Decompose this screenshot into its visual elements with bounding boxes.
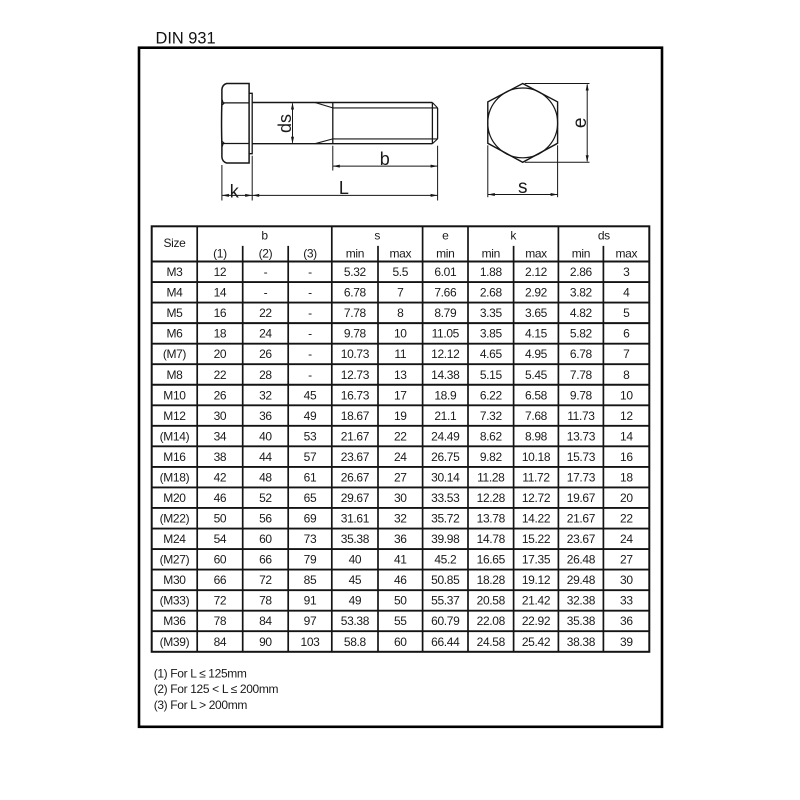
svg-text:44: 44 xyxy=(259,450,272,464)
svg-text:78: 78 xyxy=(259,594,272,608)
svg-text:36: 36 xyxy=(394,532,407,546)
svg-text:19.67: 19.67 xyxy=(567,491,596,505)
svg-text:M8: M8 xyxy=(166,368,183,382)
svg-text:-: - xyxy=(308,368,312,382)
svg-text:3.82: 3.82 xyxy=(570,286,593,300)
svg-text:91: 91 xyxy=(304,594,317,608)
svg-text:29.67: 29.67 xyxy=(341,491,370,505)
svg-text:23.67: 23.67 xyxy=(341,450,370,464)
svg-text:60: 60 xyxy=(214,553,227,567)
svg-text:22: 22 xyxy=(259,306,272,320)
svg-text:4.65: 4.65 xyxy=(480,347,503,361)
svg-text:33: 33 xyxy=(620,594,633,608)
svg-text:35.38: 35.38 xyxy=(567,614,596,628)
svg-text:29.48: 29.48 xyxy=(567,573,596,587)
svg-text:18.9: 18.9 xyxy=(434,388,457,402)
svg-text:16.65: 16.65 xyxy=(477,553,506,567)
svg-text:50.85: 50.85 xyxy=(431,573,460,587)
svg-text:26.67: 26.67 xyxy=(341,471,370,485)
svg-text:49: 49 xyxy=(349,594,362,608)
svg-text:15.73: 15.73 xyxy=(567,450,596,464)
svg-text:12: 12 xyxy=(214,265,227,279)
svg-text:min: min xyxy=(436,246,454,260)
svg-text:6.01: 6.01 xyxy=(434,265,457,279)
svg-text:M30: M30 xyxy=(163,573,186,587)
svg-text:33.53: 33.53 xyxy=(431,491,460,505)
svg-text:(1): (1) xyxy=(213,246,227,260)
svg-text:(2): (2) xyxy=(259,246,273,260)
svg-text:39: 39 xyxy=(620,635,633,649)
svg-text:52: 52 xyxy=(259,491,272,505)
svg-text:10: 10 xyxy=(394,327,407,341)
svg-text:21.42: 21.42 xyxy=(522,594,551,608)
svg-text:56: 56 xyxy=(259,512,272,526)
svg-text:17.35: 17.35 xyxy=(522,553,551,567)
svg-text:6: 6 xyxy=(623,327,630,341)
svg-text:14: 14 xyxy=(214,286,227,300)
svg-text:49: 49 xyxy=(304,409,317,423)
svg-text:8: 8 xyxy=(623,368,630,382)
svg-text:11: 11 xyxy=(394,347,406,361)
svg-text:-: - xyxy=(308,265,312,279)
svg-text:(M22): (M22) xyxy=(160,512,190,526)
svg-text:-: - xyxy=(308,347,312,361)
svg-text:(M18): (M18) xyxy=(160,471,190,485)
svg-text:8.98: 8.98 xyxy=(525,429,548,443)
svg-text:5.5: 5.5 xyxy=(392,265,408,279)
svg-text:79: 79 xyxy=(304,553,317,567)
svg-text:57: 57 xyxy=(304,450,317,464)
svg-text:84: 84 xyxy=(259,614,272,628)
svg-text:65: 65 xyxy=(304,491,317,505)
svg-text:39.98: 39.98 xyxy=(431,532,460,546)
svg-text:M12: M12 xyxy=(163,409,186,423)
svg-text:61: 61 xyxy=(304,471,317,485)
svg-text:3.85: 3.85 xyxy=(480,327,503,341)
svg-text:s: s xyxy=(518,177,528,198)
svg-text:84: 84 xyxy=(214,635,227,649)
svg-text:50: 50 xyxy=(214,512,227,526)
svg-text:12.28: 12.28 xyxy=(477,491,506,505)
svg-text:35.72: 35.72 xyxy=(431,512,460,526)
svg-text:54: 54 xyxy=(214,532,227,546)
svg-text:18.67: 18.67 xyxy=(341,409,370,423)
svg-text:M4: M4 xyxy=(166,286,183,300)
svg-text:4.82: 4.82 xyxy=(570,306,593,320)
svg-text:M24: M24 xyxy=(163,532,186,546)
svg-text:58.8: 58.8 xyxy=(344,635,367,649)
svg-text:21.67: 21.67 xyxy=(341,429,370,443)
svg-text:16: 16 xyxy=(214,306,227,320)
svg-text:s: s xyxy=(374,229,380,243)
svg-text:e: e xyxy=(442,229,449,243)
svg-text:5.15: 5.15 xyxy=(480,368,503,382)
svg-text:9.78: 9.78 xyxy=(344,327,367,341)
svg-text:ds: ds xyxy=(598,229,610,243)
svg-text:60.79: 60.79 xyxy=(431,614,460,628)
svg-text:24: 24 xyxy=(259,327,272,341)
svg-text:(M7): (M7) xyxy=(163,347,187,361)
svg-text:5.82: 5.82 xyxy=(570,327,593,341)
svg-text:16: 16 xyxy=(620,450,633,464)
svg-text:66.44: 66.44 xyxy=(431,635,460,649)
svg-text:L: L xyxy=(339,178,349,198)
svg-text:7.68: 7.68 xyxy=(525,409,548,423)
svg-text:10.73: 10.73 xyxy=(341,347,370,361)
svg-text:14.78: 14.78 xyxy=(477,532,506,546)
svg-text:28: 28 xyxy=(259,368,272,382)
svg-text:12.12: 12.12 xyxy=(431,347,460,361)
svg-text:min: min xyxy=(346,246,364,260)
svg-text:19: 19 xyxy=(394,409,407,423)
svg-text:24.58: 24.58 xyxy=(477,635,506,649)
svg-text:24.49: 24.49 xyxy=(431,429,460,443)
svg-text:13: 13 xyxy=(394,368,407,382)
svg-text:7.78: 7.78 xyxy=(344,306,367,320)
svg-text:(3): (3) xyxy=(303,246,317,260)
svg-text:32.38: 32.38 xyxy=(567,594,596,608)
svg-text:-: - xyxy=(308,327,312,341)
svg-text:9.82: 9.82 xyxy=(480,450,503,464)
svg-text:20: 20 xyxy=(620,491,633,505)
svg-text:(2) For 125 < L ≤ 200mm: (2) For 125 < L ≤ 200mm xyxy=(154,682,279,696)
svg-text:13.73: 13.73 xyxy=(567,429,596,443)
svg-text:66: 66 xyxy=(214,573,227,587)
svg-text:(M14): (M14) xyxy=(160,429,190,443)
svg-text:22.92: 22.92 xyxy=(522,614,551,628)
svg-text:45: 45 xyxy=(349,573,362,587)
svg-text:DIN 931: DIN 931 xyxy=(156,30,216,48)
svg-text:2.12: 2.12 xyxy=(525,265,548,279)
svg-text:34: 34 xyxy=(214,429,227,443)
svg-text:48: 48 xyxy=(259,471,272,485)
svg-text:18.28: 18.28 xyxy=(477,573,506,587)
svg-text:30: 30 xyxy=(394,491,407,505)
svg-text:7.66: 7.66 xyxy=(434,286,457,300)
svg-text:19.12: 19.12 xyxy=(522,573,551,587)
svg-text:8: 8 xyxy=(397,306,404,320)
svg-text:7.32: 7.32 xyxy=(480,409,503,423)
svg-text:13.78: 13.78 xyxy=(477,512,506,526)
svg-text:4.95: 4.95 xyxy=(525,347,548,361)
svg-text:53.38: 53.38 xyxy=(341,614,370,628)
svg-text:-: - xyxy=(308,306,312,320)
svg-text:9.78: 9.78 xyxy=(570,388,593,402)
svg-text:12.73: 12.73 xyxy=(341,368,370,382)
svg-text:85: 85 xyxy=(304,573,317,587)
svg-text:-: - xyxy=(308,286,312,300)
svg-text:6.22: 6.22 xyxy=(480,388,503,402)
svg-text:5.45: 5.45 xyxy=(525,368,548,382)
svg-text:22: 22 xyxy=(620,512,633,526)
svg-text:M16: M16 xyxy=(163,450,186,464)
svg-text:23.67: 23.67 xyxy=(567,532,596,546)
svg-text:11.28: 11.28 xyxy=(477,471,505,485)
svg-text:7.78: 7.78 xyxy=(570,368,593,382)
svg-text:73: 73 xyxy=(304,532,317,546)
svg-text:(M39): (M39) xyxy=(160,635,190,649)
svg-text:M6: M6 xyxy=(166,327,183,341)
svg-text:b: b xyxy=(380,149,390,169)
svg-text:35.38: 35.38 xyxy=(341,532,370,546)
svg-text:(M27): (M27) xyxy=(160,553,190,567)
svg-text:5.32: 5.32 xyxy=(344,265,367,279)
svg-text:2.92: 2.92 xyxy=(525,286,548,300)
svg-text:14.22: 14.22 xyxy=(522,512,551,526)
svg-text:max: max xyxy=(525,246,547,260)
svg-text:7: 7 xyxy=(397,286,404,300)
svg-text:max: max xyxy=(389,246,411,260)
svg-text:10.18: 10.18 xyxy=(522,450,551,464)
svg-text:20: 20 xyxy=(214,347,227,361)
svg-text:40: 40 xyxy=(349,553,362,567)
svg-text:45: 45 xyxy=(304,388,317,402)
svg-text:103: 103 xyxy=(301,635,321,649)
svg-text:27: 27 xyxy=(620,553,633,567)
svg-text:72: 72 xyxy=(214,594,227,608)
svg-text:17.73: 17.73 xyxy=(567,471,596,485)
svg-text:31.61: 31.61 xyxy=(341,512,370,526)
svg-text:46: 46 xyxy=(214,491,227,505)
svg-text:M10: M10 xyxy=(163,388,186,402)
svg-text:4.15: 4.15 xyxy=(525,327,548,341)
svg-text:21.1: 21.1 xyxy=(434,409,457,423)
svg-text:ds: ds xyxy=(275,114,295,133)
svg-text:max: max xyxy=(616,246,638,260)
svg-text:20.58: 20.58 xyxy=(477,594,506,608)
svg-text:50: 50 xyxy=(394,594,407,608)
svg-text:17: 17 xyxy=(394,388,407,402)
svg-text:11.05: 11.05 xyxy=(432,327,460,341)
svg-text:32: 32 xyxy=(259,388,272,402)
svg-text:-: - xyxy=(264,265,268,279)
svg-text:6.58: 6.58 xyxy=(525,388,548,402)
svg-text:21.67: 21.67 xyxy=(567,512,596,526)
svg-text:M5: M5 xyxy=(166,306,183,320)
svg-text:11.72: 11.72 xyxy=(522,471,550,485)
svg-text:24: 24 xyxy=(620,532,633,546)
svg-text:32: 32 xyxy=(394,512,407,526)
svg-text:26.75: 26.75 xyxy=(431,450,460,464)
svg-text:3.65: 3.65 xyxy=(525,306,548,320)
svg-text:1.88: 1.88 xyxy=(480,265,503,279)
svg-text:(1) For L ≤ 125mm: (1) For L ≤ 125mm xyxy=(154,667,247,681)
svg-text:72: 72 xyxy=(259,573,272,587)
svg-text:Size: Size xyxy=(163,236,186,250)
svg-text:2.68: 2.68 xyxy=(480,286,503,300)
svg-text:25.42: 25.42 xyxy=(522,635,551,649)
svg-text:k: k xyxy=(230,182,240,202)
svg-text:M20: M20 xyxy=(163,491,186,505)
svg-text:14: 14 xyxy=(620,429,633,443)
svg-text:26: 26 xyxy=(259,347,272,361)
svg-text:5: 5 xyxy=(623,306,630,320)
svg-text:22: 22 xyxy=(214,368,227,382)
svg-text:min: min xyxy=(572,246,590,260)
svg-text:26.48: 26.48 xyxy=(567,553,596,567)
svg-text:24: 24 xyxy=(394,450,407,464)
svg-text:30: 30 xyxy=(214,409,227,423)
svg-text:18: 18 xyxy=(214,327,227,341)
svg-text:36: 36 xyxy=(620,614,633,628)
svg-text:18: 18 xyxy=(620,471,633,485)
svg-text:8.79: 8.79 xyxy=(434,306,457,320)
svg-text:30: 30 xyxy=(620,573,633,587)
svg-text:45.2: 45.2 xyxy=(434,553,457,567)
svg-text:M3: M3 xyxy=(166,265,183,279)
svg-text:90: 90 xyxy=(259,635,272,649)
svg-text:4: 4 xyxy=(623,286,630,300)
svg-text:46: 46 xyxy=(394,573,407,587)
svg-text:12.72: 12.72 xyxy=(522,491,551,505)
svg-text:3: 3 xyxy=(623,265,630,279)
svg-text:16.73: 16.73 xyxy=(341,388,370,402)
svg-text:60: 60 xyxy=(394,635,407,649)
svg-text:b: b xyxy=(261,229,268,243)
svg-text:(3) For L > 200mm: (3) For L > 200mm xyxy=(154,698,248,712)
svg-text:6.78: 6.78 xyxy=(344,286,367,300)
svg-text:53: 53 xyxy=(304,429,317,443)
svg-text:min: min xyxy=(482,246,500,260)
svg-text:97: 97 xyxy=(304,614,317,628)
svg-text:8.62: 8.62 xyxy=(480,429,503,443)
svg-text:11.73: 11.73 xyxy=(567,409,595,423)
svg-text:69: 69 xyxy=(304,512,317,526)
svg-text:-: - xyxy=(264,286,268,300)
svg-text:38.38: 38.38 xyxy=(567,635,596,649)
svg-text:55.37: 55.37 xyxy=(431,594,460,608)
svg-text:(M33): (M33) xyxy=(160,594,190,608)
svg-text:15.22: 15.22 xyxy=(522,532,551,546)
svg-text:3.35: 3.35 xyxy=(480,306,503,320)
svg-text:22.08: 22.08 xyxy=(477,614,506,628)
svg-text:66: 66 xyxy=(259,553,272,567)
svg-text:36: 36 xyxy=(259,409,272,423)
svg-text:12: 12 xyxy=(620,409,633,423)
svg-text:55: 55 xyxy=(394,614,407,628)
svg-text:M36: M36 xyxy=(163,614,186,628)
svg-text:2.86: 2.86 xyxy=(570,265,593,279)
svg-text:41: 41 xyxy=(394,553,407,567)
svg-text:22: 22 xyxy=(394,429,407,443)
svg-text:14.38: 14.38 xyxy=(431,368,460,382)
svg-text:30.14: 30.14 xyxy=(431,471,460,485)
svg-text:26: 26 xyxy=(214,388,227,402)
svg-text:e: e xyxy=(570,118,591,129)
svg-text:27: 27 xyxy=(394,471,407,485)
svg-text:38: 38 xyxy=(214,450,227,464)
svg-text:42: 42 xyxy=(214,471,227,485)
svg-text:78: 78 xyxy=(214,614,227,628)
svg-text:10: 10 xyxy=(620,388,633,402)
svg-text:6.78: 6.78 xyxy=(570,347,593,361)
svg-text:40: 40 xyxy=(259,429,272,443)
svg-text:60: 60 xyxy=(259,532,272,546)
svg-text:7: 7 xyxy=(623,347,630,361)
